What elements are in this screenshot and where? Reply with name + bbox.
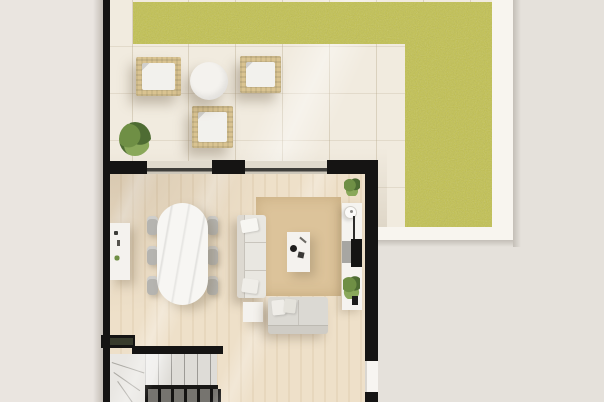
right-wall xyxy=(365,173,378,362)
short-sofa xyxy=(268,297,328,333)
top-wall-pillar xyxy=(212,160,245,174)
window-2 xyxy=(245,161,327,174)
dining-table xyxy=(157,203,208,305)
dining-chair xyxy=(207,216,218,235)
chair-cushion xyxy=(198,112,227,142)
corner-plant xyxy=(344,178,360,196)
side-table xyxy=(243,302,263,322)
wicker-armchair-right xyxy=(240,56,281,93)
chair-cushion xyxy=(142,63,175,90)
stair-upper-treads xyxy=(145,354,217,385)
decor-stick xyxy=(299,237,306,244)
top-wall-segment xyxy=(103,161,147,174)
lamp-shadow-dot xyxy=(350,210,353,213)
wicker-armchair-bottom xyxy=(192,106,233,148)
dining-chair xyxy=(207,246,218,265)
right-wall-lower xyxy=(365,392,378,402)
outdoor-round-table xyxy=(190,62,228,100)
wicker-armchair-left xyxy=(136,57,181,96)
coffee-table xyxy=(287,232,310,272)
stair-lower-treads xyxy=(145,389,221,402)
tv xyxy=(351,239,362,267)
sideboard-plant xyxy=(114,255,120,261)
sofa-pillow xyxy=(241,278,259,294)
sofa-cushion-seam xyxy=(244,270,266,271)
terrace-plant xyxy=(119,122,151,156)
decor-bowl xyxy=(290,245,297,252)
media-wall-unit xyxy=(342,203,362,310)
exterior-ground-left xyxy=(0,0,103,402)
sofa-pillow xyxy=(240,218,259,234)
long-sofa xyxy=(237,215,266,298)
top-wall-corner xyxy=(327,160,378,174)
stair-stub-recess xyxy=(110,338,133,345)
dining-chair xyxy=(207,276,218,295)
plant-pot xyxy=(352,296,358,305)
sideboard-decor xyxy=(117,240,120,246)
sofa-pillow xyxy=(283,298,297,313)
chair-cushion xyxy=(246,62,275,87)
deck-shadow-bottom xyxy=(373,240,513,247)
window-1 xyxy=(147,161,212,174)
sofa-cushion-seam xyxy=(298,300,299,325)
floor-plan-scene xyxy=(0,0,604,402)
tv-mount-line xyxy=(353,216,355,241)
sofa-backrest xyxy=(268,325,328,334)
deck-shadow-right xyxy=(513,0,521,247)
stair-wall xyxy=(132,346,223,354)
sideboard xyxy=(110,223,130,280)
sideboard-decor xyxy=(114,231,118,235)
door xyxy=(365,361,378,393)
decor-book xyxy=(297,251,304,258)
sofa-cushion-seam xyxy=(244,242,266,243)
